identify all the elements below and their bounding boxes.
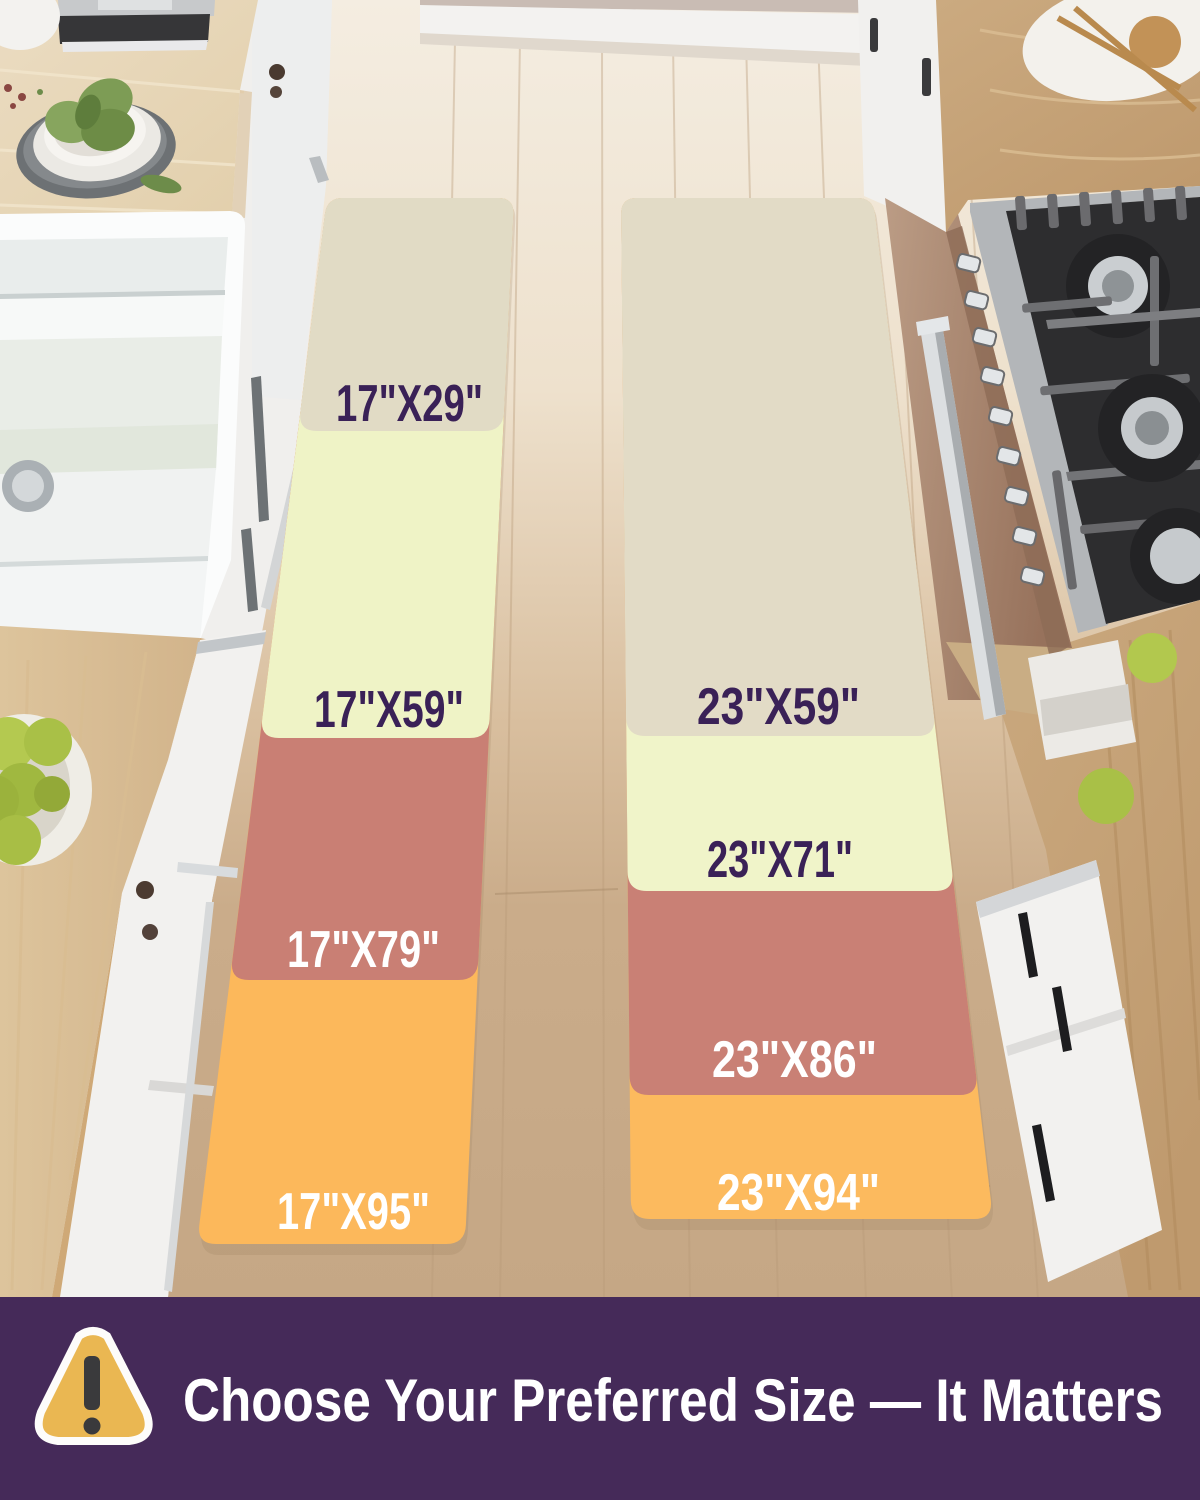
svg-text:17"X29": 17"X29"	[336, 375, 483, 433]
svg-text:17"X95": 17"X95"	[277, 1183, 430, 1241]
svg-text:17"X59": 17"X59"	[314, 681, 464, 739]
svg-text:23"X94": 23"X94"	[717, 1164, 880, 1222]
svg-text:Choose Your Preferred Size — I: Choose Your Preferred Size — It Matters	[183, 1367, 1163, 1434]
svg-text:23"X71": 23"X71"	[707, 831, 853, 889]
svg-text:23"X86": 23"X86"	[712, 1031, 877, 1089]
svg-text:23"X59": 23"X59"	[697, 678, 860, 736]
svg-text:17"X79": 17"X79"	[287, 921, 440, 979]
